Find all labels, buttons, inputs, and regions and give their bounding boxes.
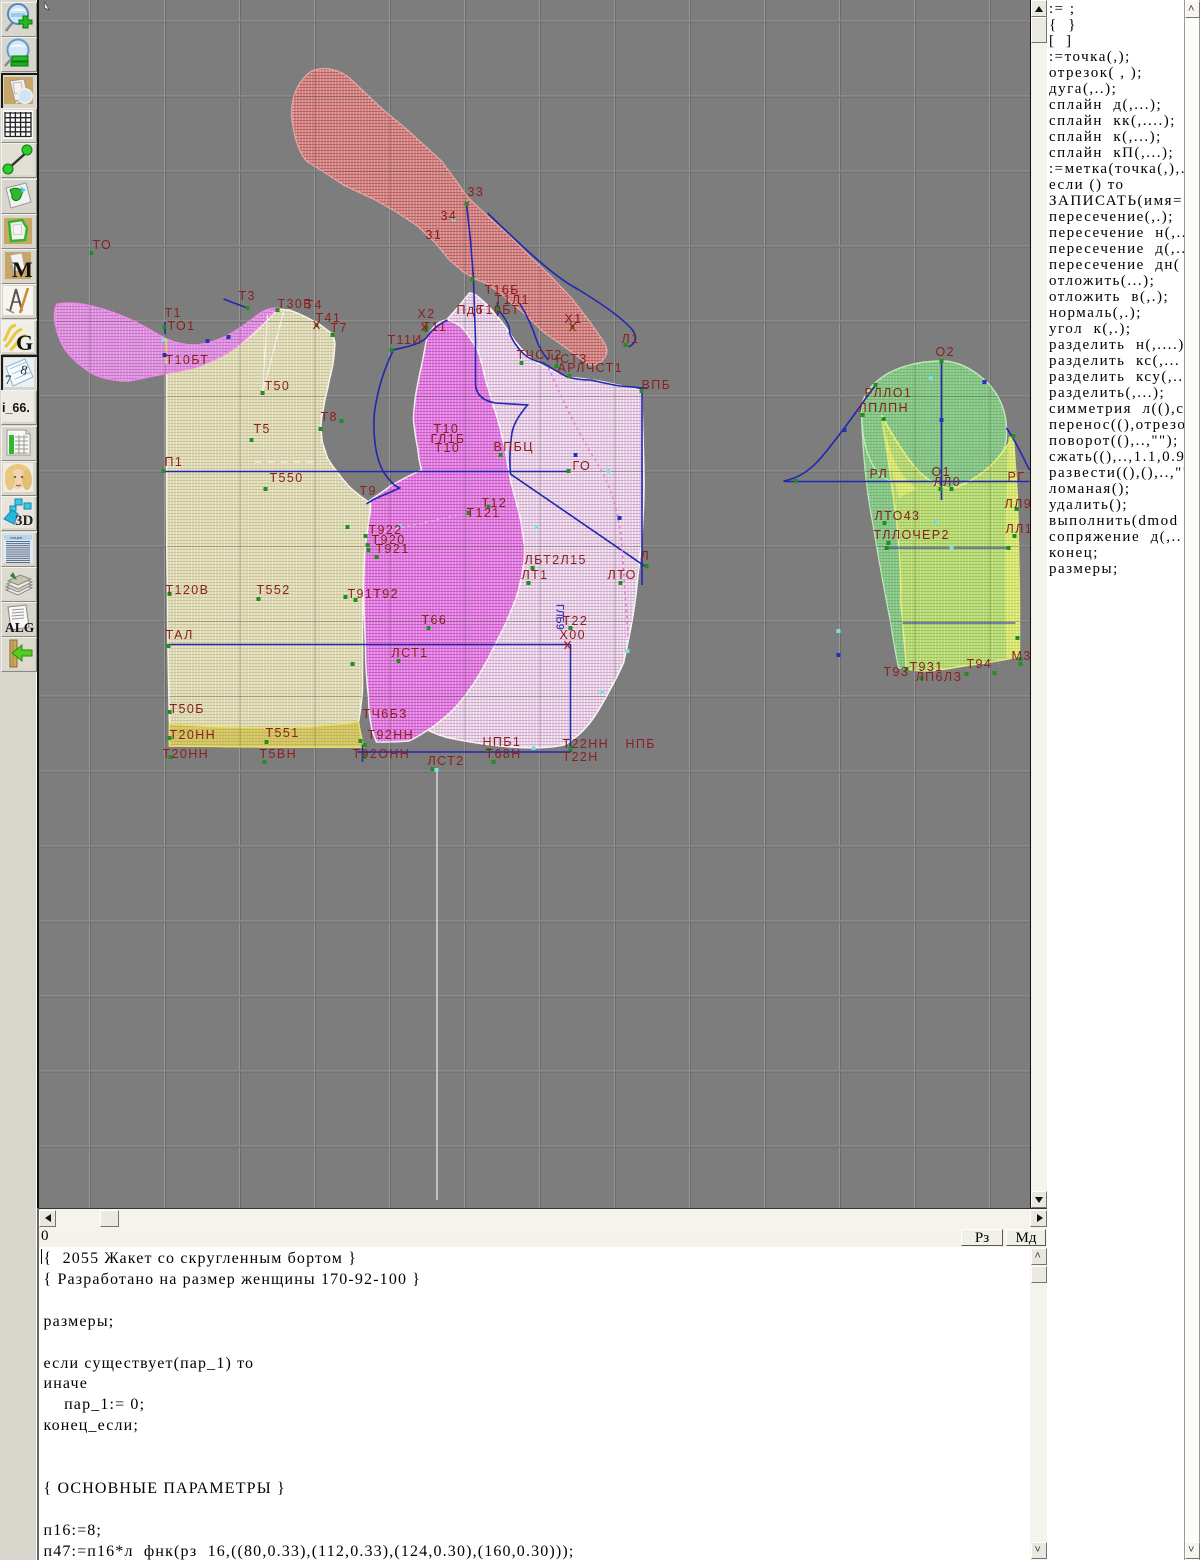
svg-text:Т91Т92: Т91Т92 [347, 587, 398, 601]
svg-text:ЛТО43: ЛТО43 [874, 509, 920, 523]
svg-text:Т92ОНН: Т92ОНН [352, 747, 410, 761]
svg-text:ALG: ALG [5, 620, 34, 634]
svg-text:ЛЛ1: ЛЛ1 [1005, 522, 1030, 536]
svg-text:33: 33 [467, 185, 484, 199]
svg-text:ЛТО: ЛТО [607, 568, 636, 582]
svg-text:3D: 3D [15, 513, 34, 528]
svg-text:ТО1: ТО1 [167, 319, 195, 333]
svg-text:M: M [12, 257, 33, 281]
svg-text:ЛСТ1: ЛСТ1 [391, 646, 428, 660]
svg-text:Т3: Т3 [238, 289, 255, 303]
svg-text:Л: Л [640, 549, 650, 563]
svg-text:ЛТ1: ЛТ1 [521, 568, 548, 582]
svg-text:Т8: Т8 [320, 410, 337, 424]
svg-text:АРЛЧСТ1: АРЛЧСТ1 [557, 361, 623, 375]
svg-text:М3: М3 [1011, 649, 1030, 663]
svg-text:ЛЛ0: ЛЛ0 [933, 475, 961, 489]
svg-text:Т11И: Т11И [387, 333, 422, 347]
svg-text:Т4: Т4 [305, 298, 322, 312]
svg-text:Т10БТ: Т10БТ [165, 353, 209, 367]
svg-text:Т10БТ: Т10БТ [476, 303, 520, 317]
svg-text:РЛЛО1: РЛЛО1 [864, 386, 912, 400]
svg-text:Т50: Т50 [264, 379, 290, 393]
svg-text:Х2: Х2 [417, 307, 435, 321]
svg-text:О2: О2 [935, 345, 954, 359]
svg-text:Т921: Т921 [375, 542, 409, 556]
svg-text:ГРАЦИЯ: ГРАЦИЯ [10, 536, 22, 540]
svg-text:Т9: Т9 [359, 484, 376, 498]
svg-text:ТО: ТО [92, 238, 112, 252]
svg-text:Т66: Т66 [421, 613, 447, 627]
svg-text:Х1: Х1 [564, 312, 582, 326]
svg-text:НПБ: НПБ [625, 737, 655, 751]
svg-text:Т551: Т551 [265, 726, 299, 740]
svg-text:Х00: Х00 [559, 628, 585, 642]
svg-text:Т68Н: Т68Н [485, 747, 521, 761]
svg-text:31: 31 [425, 228, 442, 242]
svg-text:Т94: Т94 [966, 657, 992, 671]
svg-text:ГО: ГО [572, 459, 591, 473]
svg-text:Т11: Т11 [422, 320, 447, 334]
svg-text:ВПБЦ: ВПБЦ [493, 440, 533, 454]
svg-text:Т93: Т93 [883, 665, 909, 679]
svg-text:ЛСТ2: ЛСТ2 [427, 754, 464, 768]
svg-text:Т22: Т22 [562, 614, 588, 628]
svg-text:34: 34 [440, 209, 457, 223]
svg-text:G: G [16, 330, 33, 352]
svg-text:Т121: Т121 [466, 506, 500, 520]
svg-text:ВПБ: ВПБ [641, 378, 671, 392]
svg-text:Т5ВН: Т5ВН [259, 747, 297, 761]
svg-text:Т5: Т5 [253, 422, 270, 436]
svg-text:РЛ: РЛ [869, 467, 888, 481]
svg-text:ЛПЛПН: ЛПЛПН [858, 401, 908, 415]
svg-text:ЛБТ2Л15: ЛБТ2Л15 [524, 553, 586, 567]
svg-text:Т552: Т552 [256, 583, 290, 597]
svg-text:Т7: Т7 [330, 321, 347, 335]
svg-text:Т20НН: Т20НН [169, 728, 216, 742]
svg-text:ЛЛ9: ЛЛ9 [1004, 497, 1030, 511]
svg-text:Т20НН: Т20НН [162, 747, 209, 761]
svg-text:П1: П1 [164, 455, 183, 469]
svg-text:Т1: Т1 [164, 306, 181, 320]
svg-text:Т550: Т550 [269, 471, 303, 485]
svg-text:Т22Н: Т22Н [562, 750, 598, 764]
svg-text:РГ: РГ [1007, 470, 1025, 484]
svg-text:Т22НН: Т22НН [562, 737, 609, 751]
svg-text:Т50Б: Т50Б [169, 702, 204, 716]
svg-text:i_66.: i_66. [2, 401, 30, 415]
svg-text:7: 7 [5, 372, 12, 387]
svg-text:Т92НН: Т92НН [367, 728, 414, 742]
svg-text:Л1: Л1 [621, 332, 639, 346]
svg-text:Т10: Т10 [434, 441, 460, 455]
svg-text:ЛП6ЛЗ: ЛП6ЛЗ [915, 670, 962, 684]
svg-text:ТАЛ: ТАЛ [165, 628, 193, 642]
svg-text:ТЧ6Б3: ТЧ6Б3 [362, 707, 407, 721]
svg-text:Т120В: Т120В [165, 583, 209, 597]
svg-text:ТЛЛОЧЕР2: ТЛЛОЧЕР2 [873, 528, 949, 542]
